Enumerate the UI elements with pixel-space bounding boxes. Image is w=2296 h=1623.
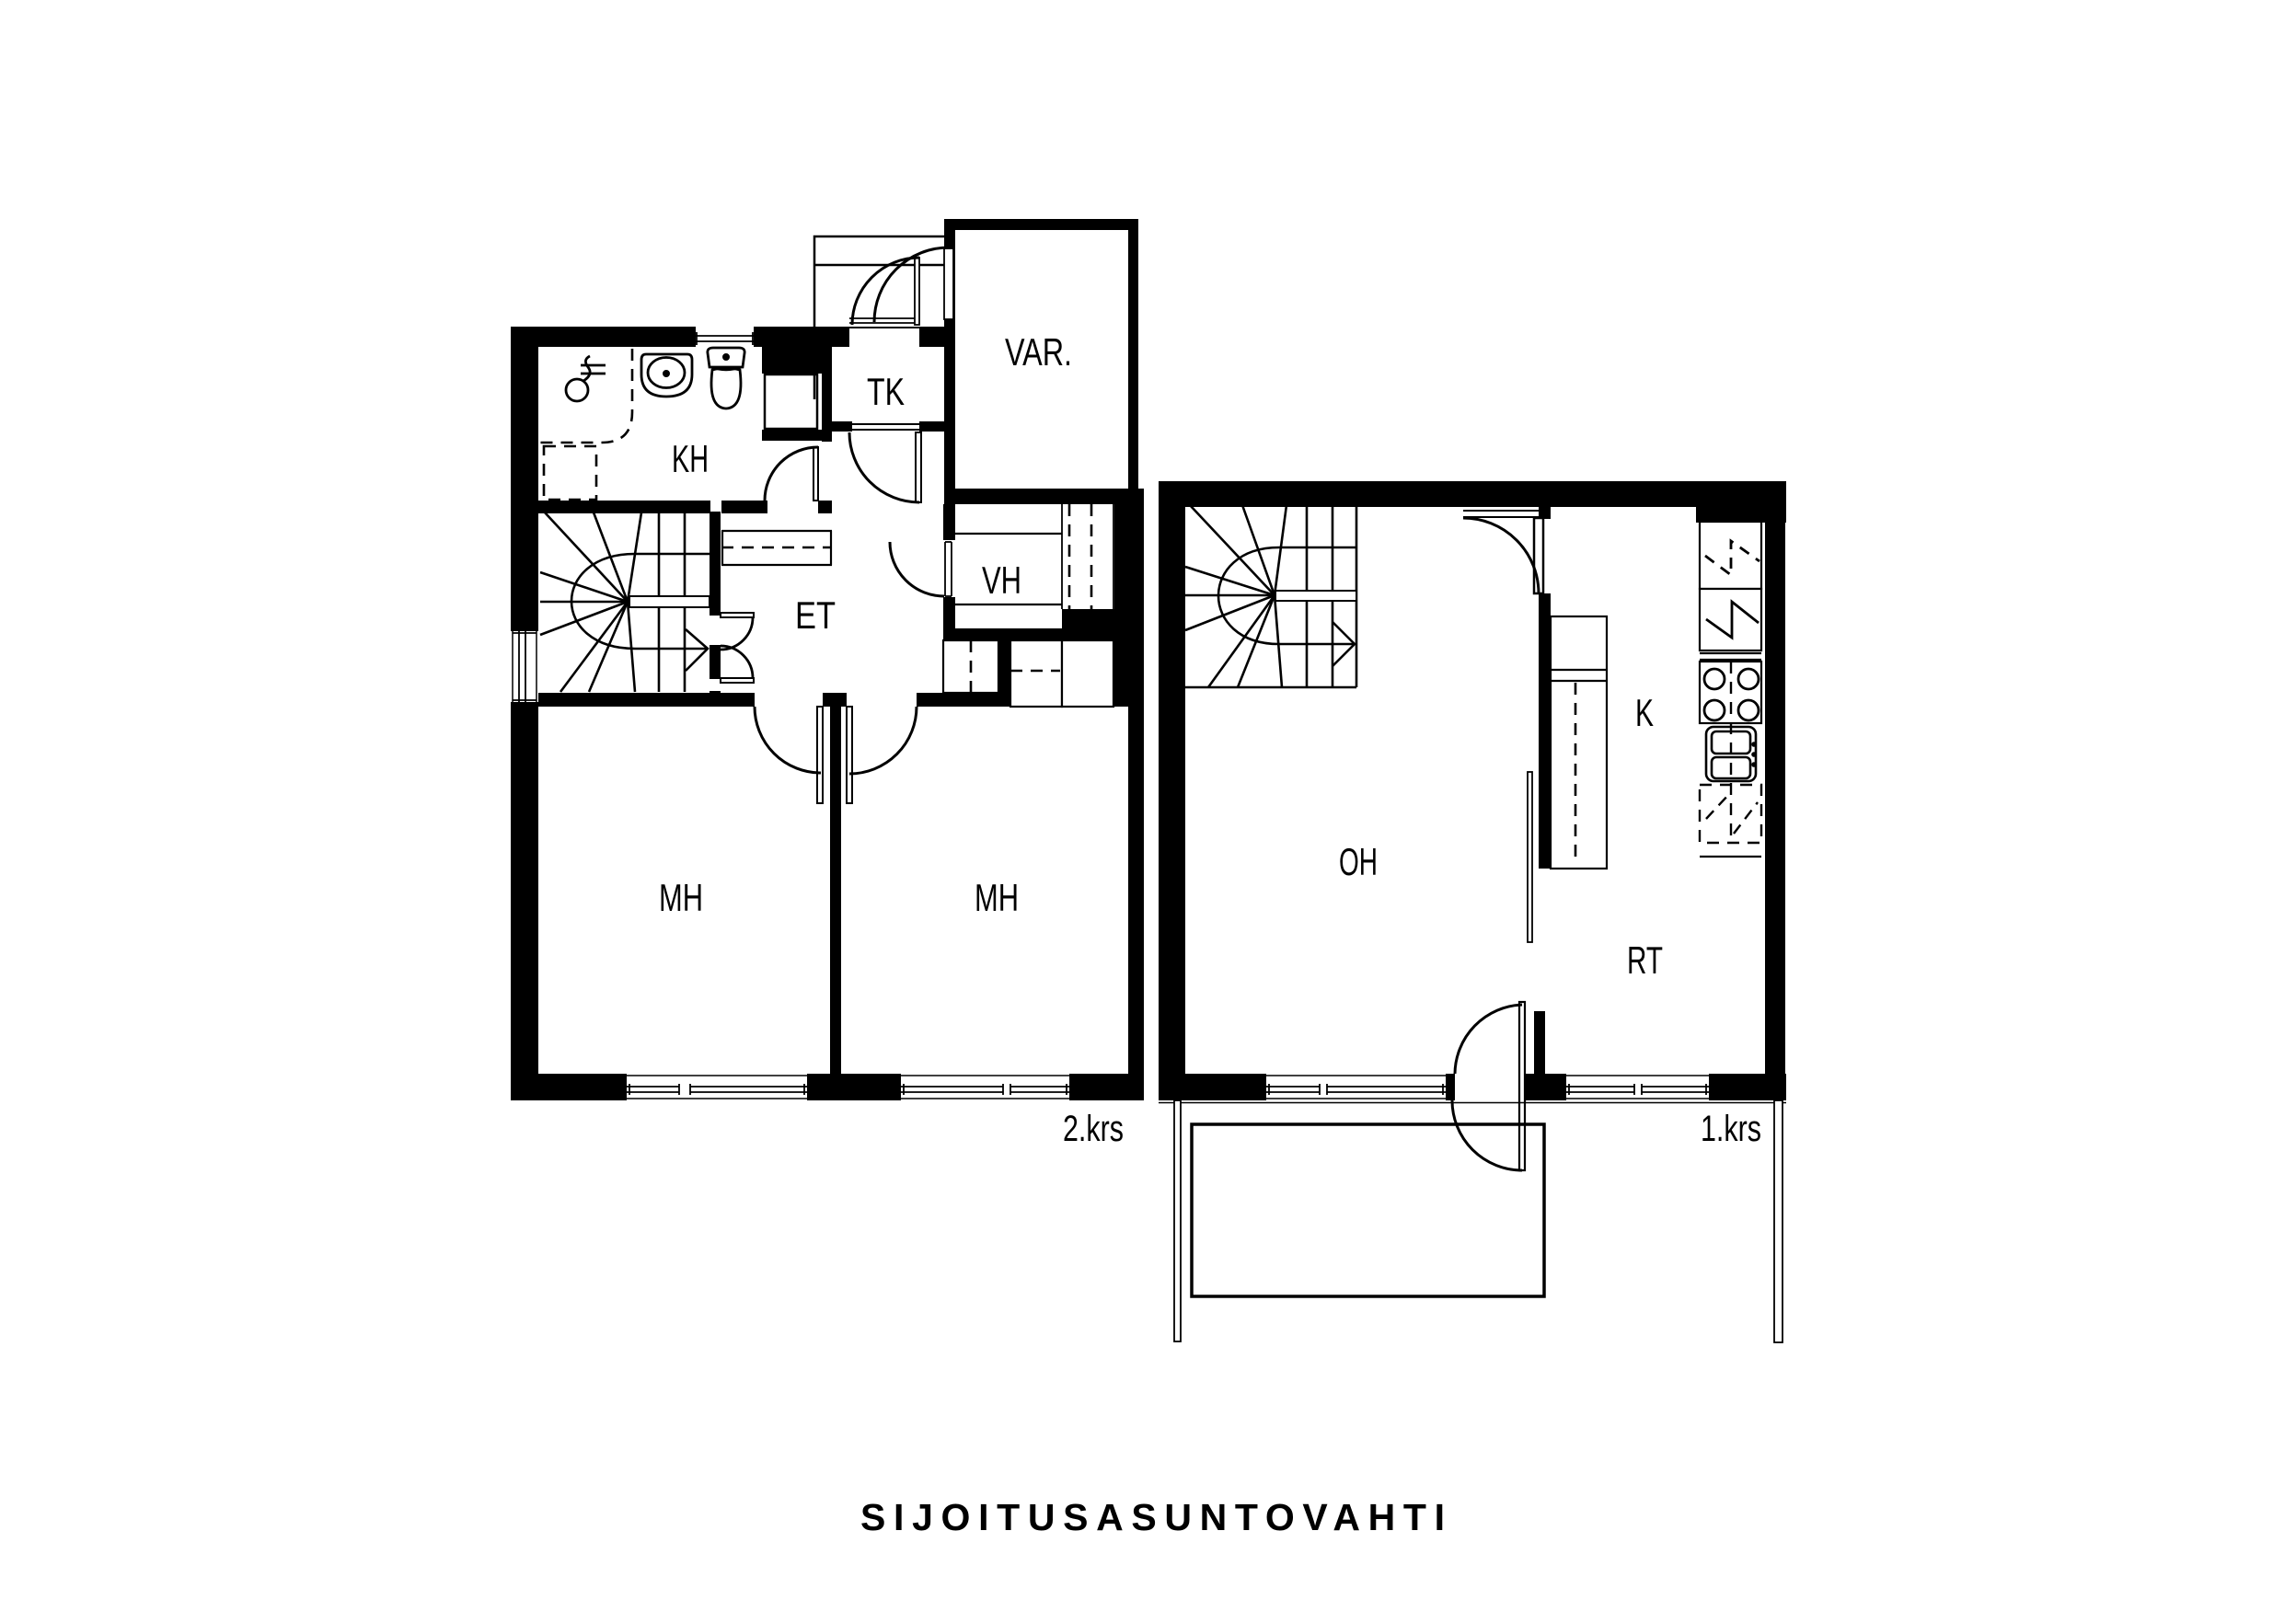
svg-text:MH: MH bbox=[659, 876, 703, 919]
svg-text:TK: TK bbox=[867, 370, 905, 413]
svg-text:K: K bbox=[1635, 691, 1654, 734]
svg-text:VAR.: VAR. bbox=[1005, 330, 1072, 374]
svg-text:1.krs: 1.krs bbox=[1701, 1109, 1761, 1149]
svg-text:2.krs: 2.krs bbox=[1063, 1109, 1124, 1149]
svg-text:VH: VH bbox=[982, 558, 1021, 602]
svg-text:RT: RT bbox=[1627, 938, 1663, 982]
svg-text:OH: OH bbox=[1339, 840, 1378, 883]
svg-text:MH: MH bbox=[975, 876, 1019, 919]
svg-text:SIJOITUSASUNTOVAHTI: SIJOITUSASUNTOVAHTI bbox=[860, 1496, 1452, 1538]
svg-text:KH: KH bbox=[672, 437, 709, 480]
svg-text:ET: ET bbox=[795, 593, 836, 637]
